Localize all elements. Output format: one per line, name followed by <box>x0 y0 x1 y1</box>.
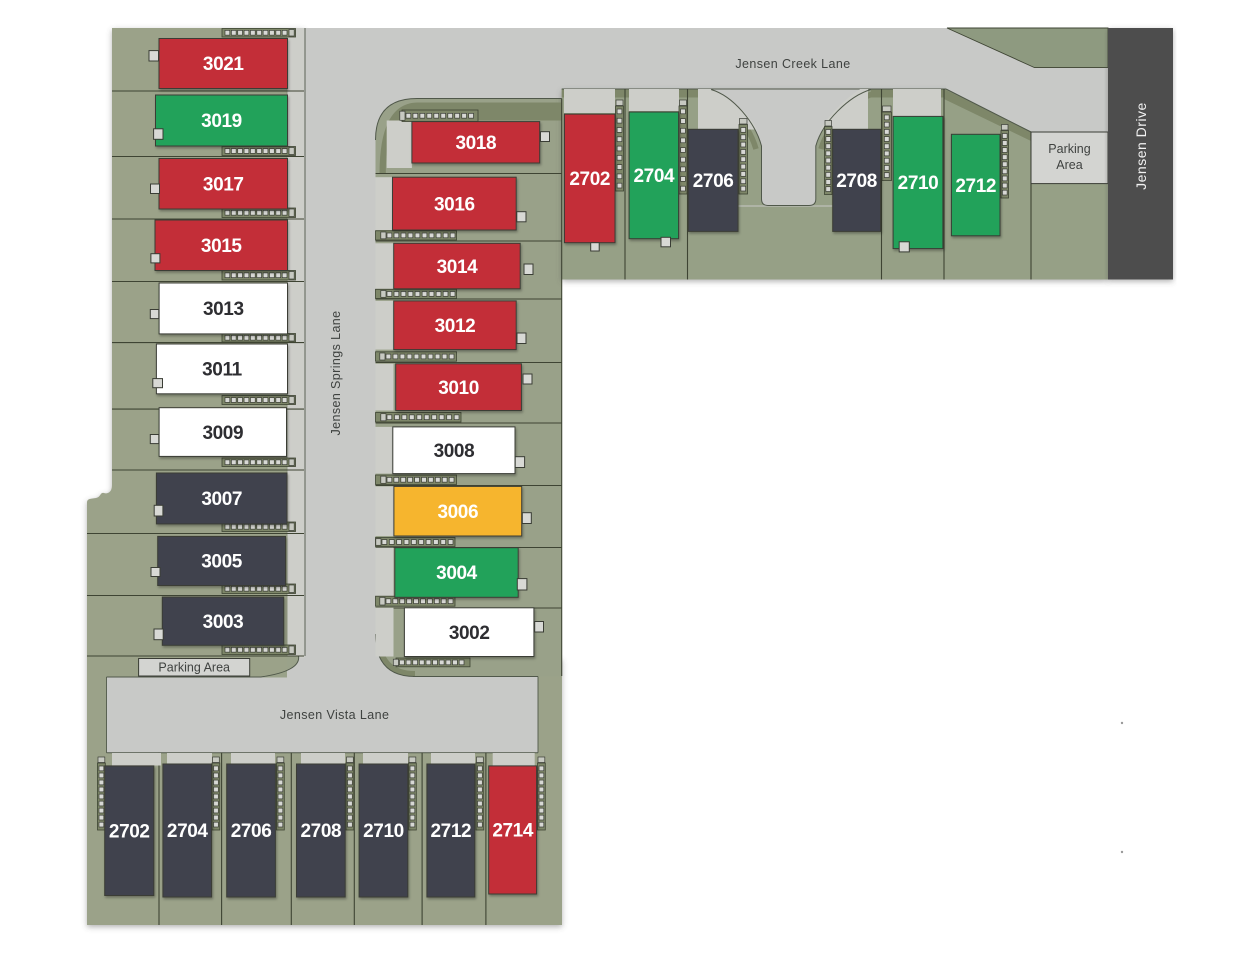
svg-text:3018: 3018 <box>455 133 496 154</box>
svg-text:2706: 2706 <box>231 821 272 842</box>
svg-text:3004: 3004 <box>436 563 478 584</box>
svg-text:2714: 2714 <box>492 821 534 842</box>
svg-text:2712: 2712 <box>955 176 996 197</box>
svg-text:3008: 3008 <box>434 441 475 462</box>
svg-text:3015: 3015 <box>201 236 243 257</box>
svg-text:Parking: Parking <box>1048 142 1090 156</box>
svg-text:Parking Area: Parking Area <box>158 661 230 675</box>
svg-text:3019: 3019 <box>201 111 242 132</box>
svg-text:3016: 3016 <box>434 194 475 215</box>
svg-text:Jensen Springs Lane: Jensen Springs Lane <box>329 310 343 435</box>
svg-text:2704: 2704 <box>167 821 209 842</box>
svg-text:2708: 2708 <box>301 821 342 842</box>
svg-text:3006: 3006 <box>437 502 478 523</box>
svg-text:3009: 3009 <box>202 423 243 444</box>
svg-text:3012: 3012 <box>435 316 476 337</box>
svg-text:3010: 3010 <box>438 378 479 399</box>
svg-text:3011: 3011 <box>202 360 242 381</box>
svg-text:2708: 2708 <box>836 171 877 192</box>
svg-text:Jensen Creek Lane: Jensen Creek Lane <box>735 57 850 71</box>
svg-text:3014: 3014 <box>437 257 479 278</box>
svg-text:2704: 2704 <box>634 166 676 187</box>
svg-text:2702: 2702 <box>569 169 610 190</box>
svg-text:2710: 2710 <box>363 821 404 842</box>
svg-text:3002: 3002 <box>449 623 490 644</box>
svg-text:2706: 2706 <box>693 171 734 192</box>
svg-text:3003: 3003 <box>203 612 244 633</box>
svg-text:Area: Area <box>1056 158 1082 172</box>
svg-text:3017: 3017 <box>203 174 244 195</box>
svg-text:2712: 2712 <box>431 821 472 842</box>
svg-text:3021: 3021 <box>203 54 245 75</box>
svg-text:3005: 3005 <box>201 552 243 573</box>
svg-text:2702: 2702 <box>109 821 150 842</box>
svg-text:Jensen Drive: Jensen Drive <box>1133 102 1149 190</box>
svg-text:2710: 2710 <box>898 173 939 194</box>
svg-text:3013: 3013 <box>203 299 244 320</box>
svg-text:Jensen Vista Lane: Jensen Vista Lane <box>280 708 389 722</box>
svg-text:3007: 3007 <box>201 489 242 510</box>
